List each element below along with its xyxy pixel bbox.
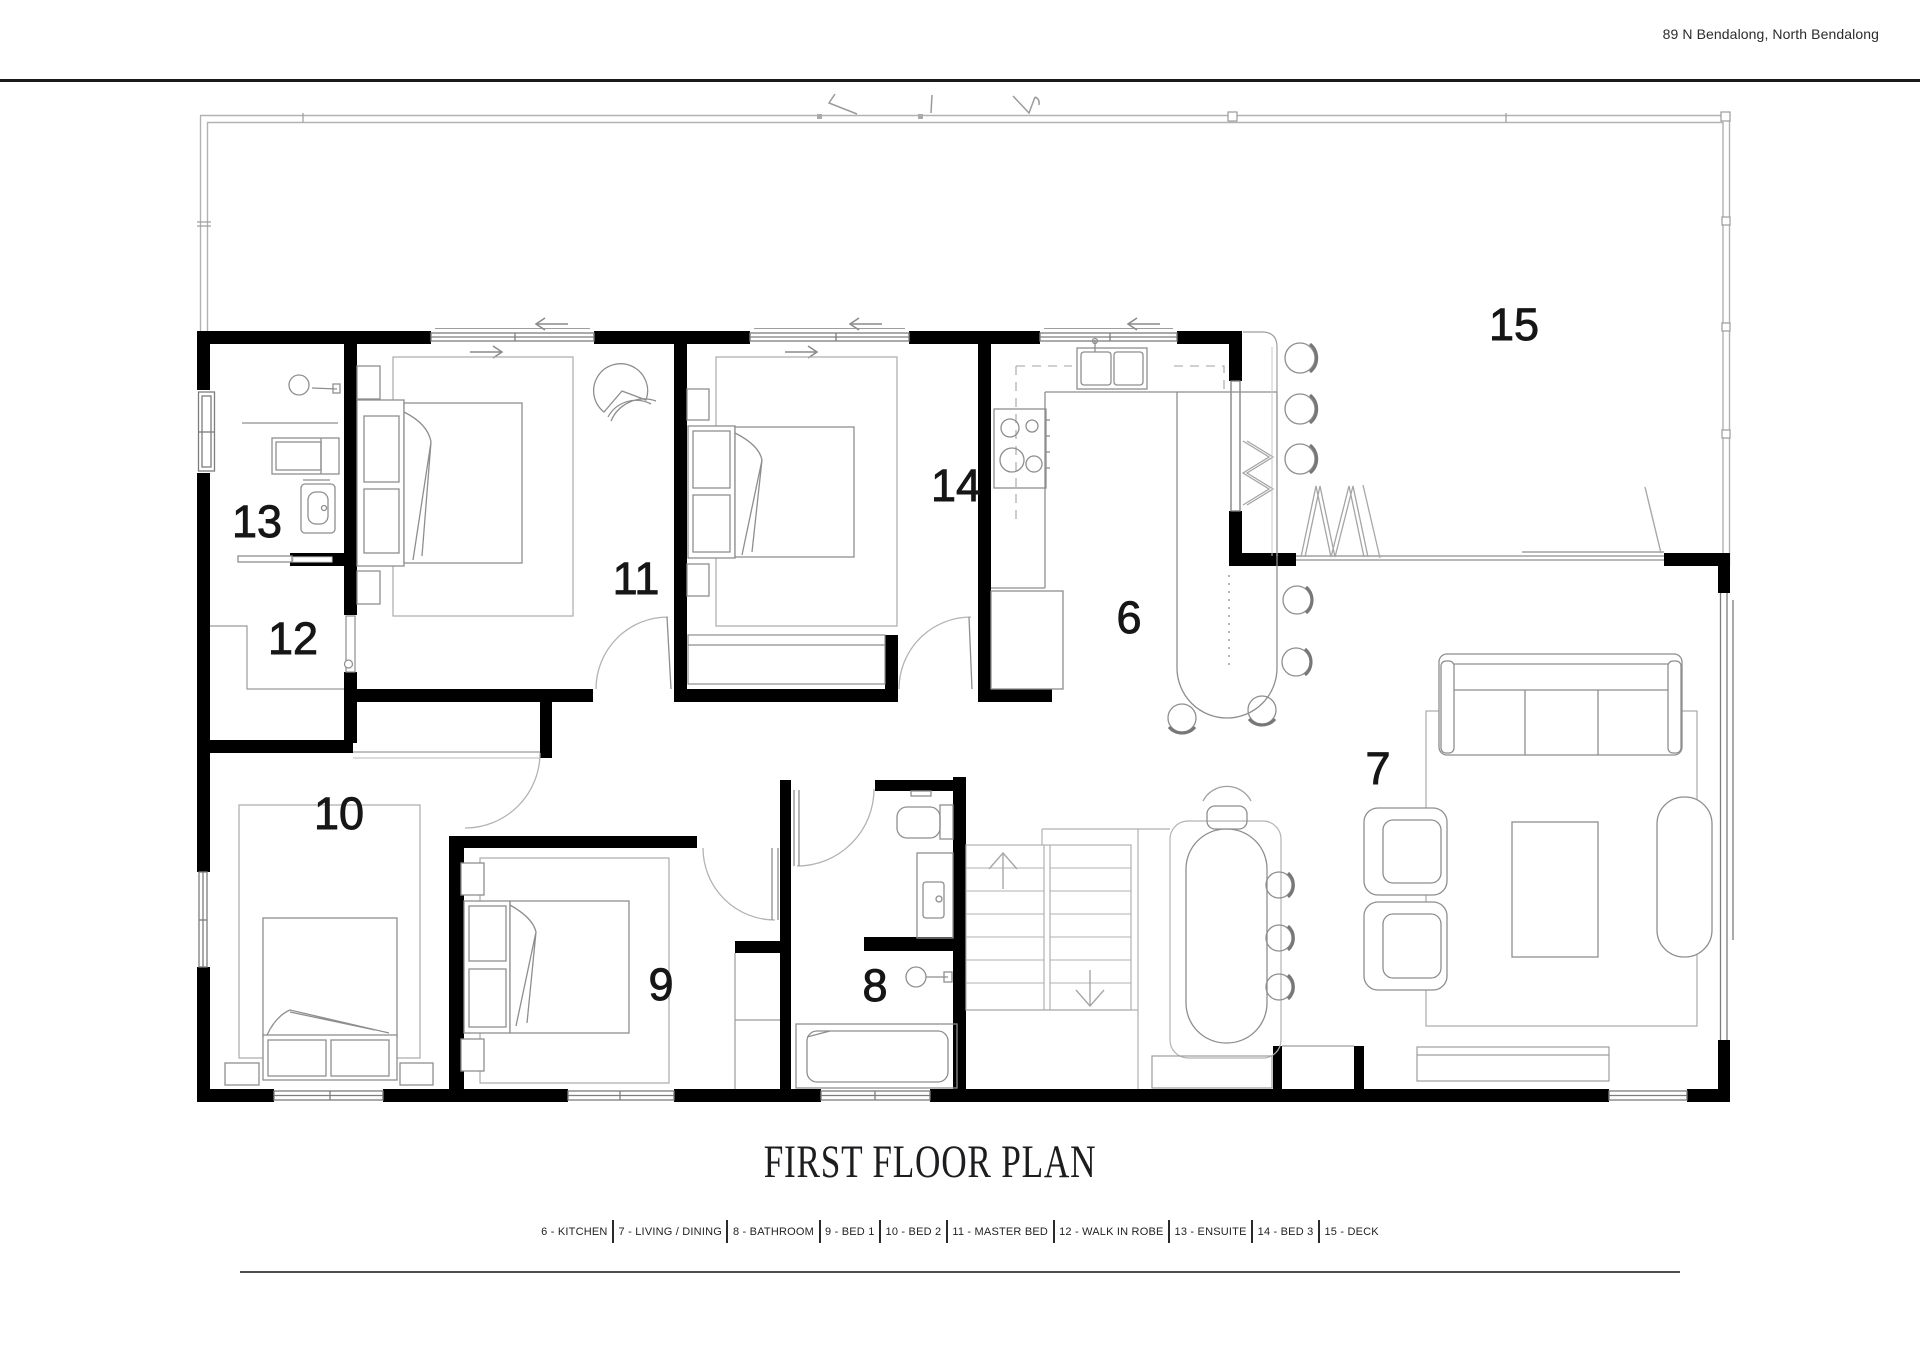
svg-text:12: 12 <box>268 613 318 664</box>
svg-text:15: 15 <box>1489 299 1539 350</box>
svg-text:11: 11 <box>613 553 660 604</box>
svg-text:10: 10 <box>314 788 364 839</box>
svg-text:9: 9 <box>648 959 673 1010</box>
svg-text:13: 13 <box>232 496 282 547</box>
svg-text:6: 6 <box>1116 592 1141 643</box>
svg-text:14: 14 <box>931 460 981 511</box>
svg-text:8: 8 <box>862 960 887 1011</box>
svg-text:7: 7 <box>1365 743 1390 794</box>
